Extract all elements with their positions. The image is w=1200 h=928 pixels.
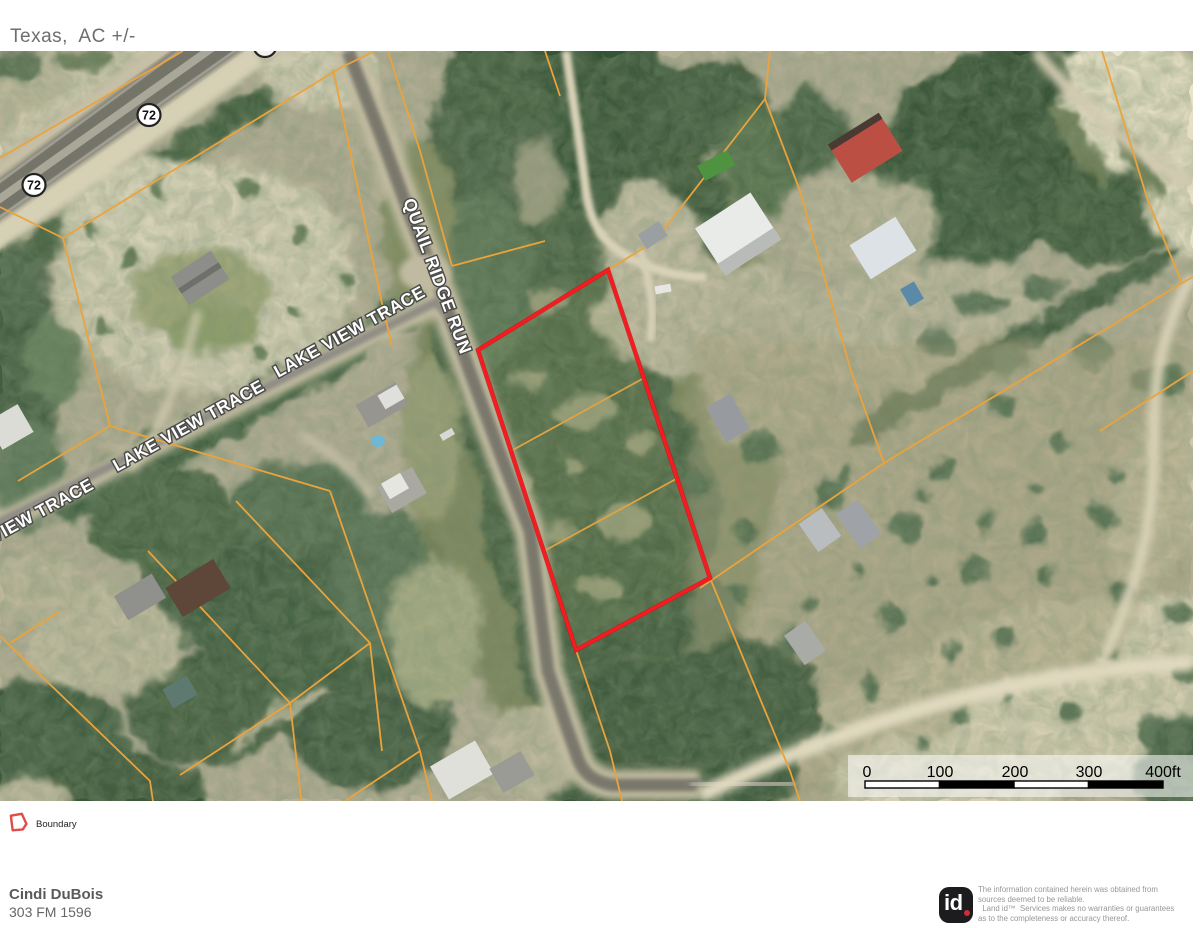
svg-text:200: 200: [1002, 764, 1029, 781]
svg-text:0: 0: [863, 764, 872, 781]
svg-text:72: 72: [142, 109, 156, 123]
svg-text:100: 100: [927, 764, 954, 781]
svg-text:72: 72: [27, 179, 41, 193]
svg-text:400ft: 400ft: [1145, 764, 1181, 781]
svg-text:300: 300: [1076, 764, 1103, 781]
